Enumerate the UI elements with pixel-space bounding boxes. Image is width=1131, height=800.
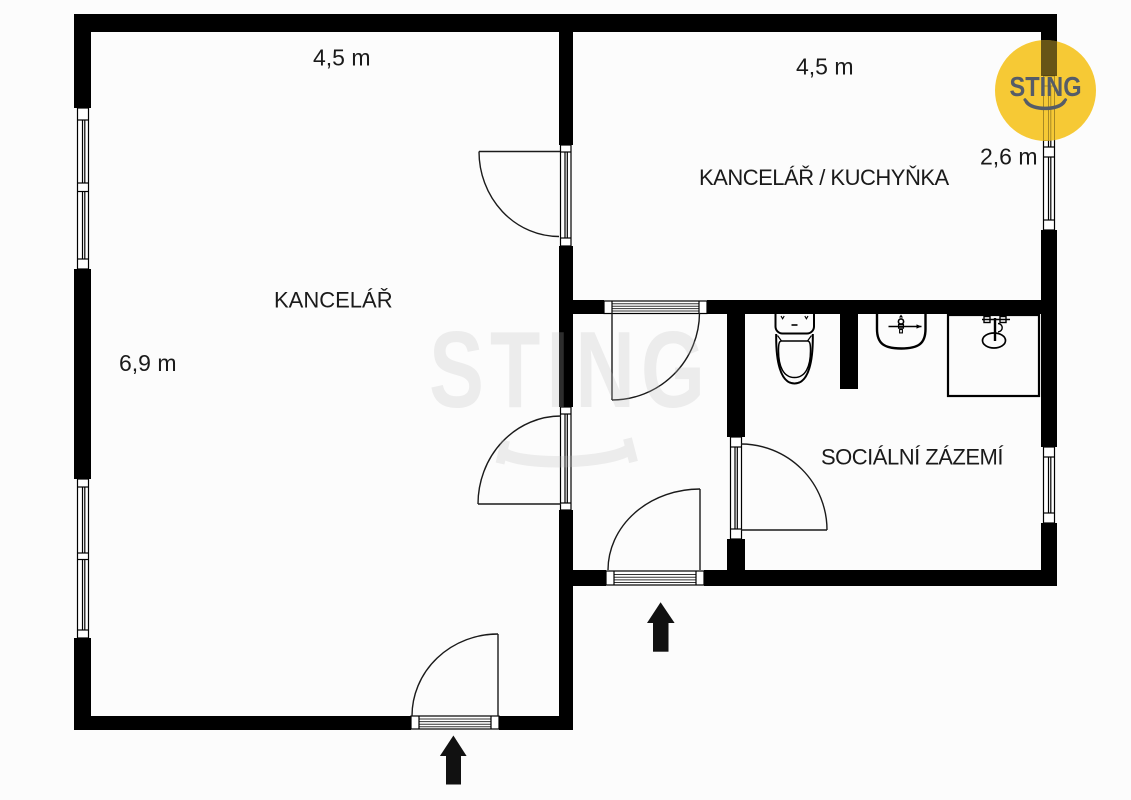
svg-text:4,5 m: 4,5 m [796, 53, 854, 79]
svg-text:4,5 m: 4,5 m [313, 45, 371, 71]
svg-text:SOCIÁLNÍ ZÁZEMÍ: SOCIÁLNÍ ZÁZEMÍ [821, 445, 1004, 470]
svg-text:KANCELÁŘ / KUCHYŇKA: KANCELÁŘ / KUCHYŇKA [699, 165, 950, 190]
svg-text:2,6 m: 2,6 m [980, 144, 1038, 170]
svg-text:STING: STING [429, 310, 711, 431]
svg-text:STING: STING [1010, 72, 1082, 102]
svg-text:KANCELÁŘ: KANCELÁŘ [274, 288, 393, 313]
svg-text:6,9 m: 6,9 m [119, 350, 177, 376]
